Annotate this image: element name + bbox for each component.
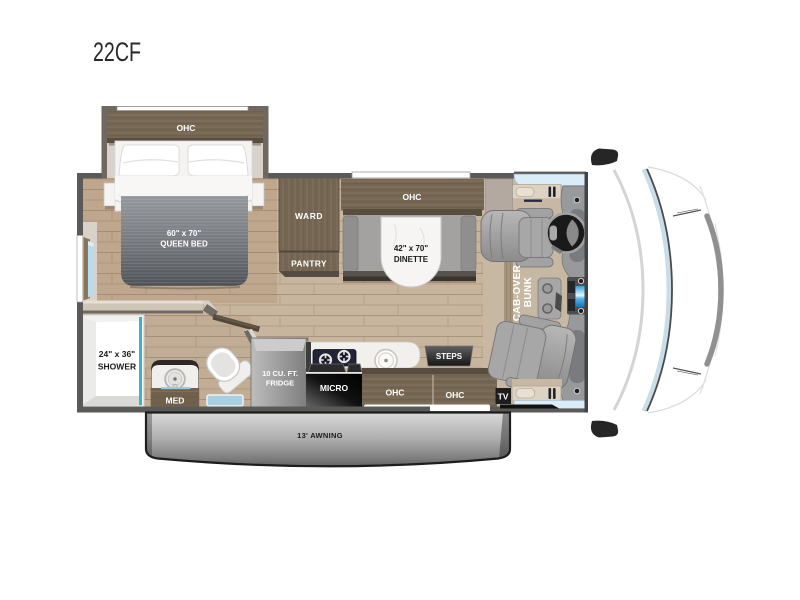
svg-text:TV: TV	[498, 392, 509, 402]
svg-text:10 CU. FT.: 10 CU. FT.	[262, 369, 298, 378]
svg-text:MICRO: MICRO	[320, 383, 349, 393]
svg-text:STEPS: STEPS	[436, 352, 463, 361]
svg-text:CAB-OVER: CAB-OVER	[512, 264, 523, 321]
svg-text:DINETTE: DINETTE	[394, 255, 429, 264]
svg-text:PANTRY: PANTRY	[291, 259, 327, 269]
svg-text:MED: MED	[166, 396, 185, 406]
svg-text:24" x 36": 24" x 36"	[99, 349, 135, 359]
svg-text:60" x 70": 60" x 70"	[167, 229, 201, 238]
svg-text:OHC: OHC	[446, 390, 465, 400]
svg-text:22CF: 22CF	[93, 37, 141, 67]
svg-text:42" x 70": 42" x 70"	[394, 244, 428, 253]
svg-text:SHOWER: SHOWER	[98, 362, 136, 372]
svg-text:FRIDGE: FRIDGE	[266, 379, 294, 388]
svg-text:OHC: OHC	[177, 123, 196, 133]
svg-text:BUNK: BUNK	[523, 276, 534, 307]
svg-text:13' AWNING: 13' AWNING	[297, 431, 343, 440]
svg-text:OHC: OHC	[386, 388, 405, 398]
svg-text:QUEEN BED: QUEEN BED	[160, 240, 208, 249]
svg-text:WARD: WARD	[295, 211, 323, 221]
svg-text:OHC: OHC	[403, 192, 422, 202]
